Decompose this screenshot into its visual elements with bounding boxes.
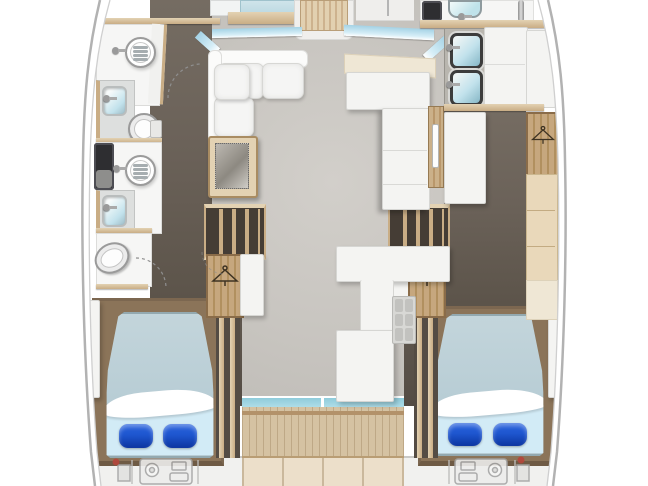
hanger-icon — [530, 125, 556, 147]
wood-step-strip — [230, 314, 235, 458]
pillow — [119, 424, 153, 447]
boat-floor-plan — [0, 0, 648, 486]
port-stairs — [204, 204, 266, 260]
faucet-icon — [446, 44, 453, 51]
cockpit-deck-sill — [242, 411, 404, 415]
galley-island-column-upper — [360, 280, 394, 333]
hanger-icon — [210, 265, 240, 289]
pillow — [493, 423, 527, 446]
port-berth — [102, 312, 218, 458]
settee-cushion — [214, 97, 254, 137]
head-appliance-dark — [422, 1, 442, 21]
settee-corner-cushion — [214, 64, 250, 100]
hull-cabinet — [526, 174, 558, 282]
counter-seam — [383, 184, 427, 185]
cabinet-seam — [527, 246, 555, 247]
counter-seam — [485, 64, 525, 65]
salon-table-top — [215, 143, 249, 189]
port-locker-side-panel — [240, 254, 264, 316]
shower-rail — [518, 0, 524, 22]
counter-seam — [383, 150, 427, 151]
wood-step-strip — [428, 314, 433, 458]
cabinet-seam — [527, 210, 555, 211]
shower-head-icon — [113, 165, 120, 172]
door-handle — [432, 124, 439, 168]
port-cabin-shelf — [88, 300, 100, 398]
starboard-hull-locker — [526, 112, 560, 178]
pillow — [163, 424, 197, 447]
appliance-grid — [392, 296, 416, 344]
galley-island-column-lower — [336, 330, 394, 402]
galley-counter-column — [382, 108, 430, 210]
shower-drain-icon — [125, 155, 156, 186]
helm-wheel-post — [387, 0, 389, 16]
transom-deck — [242, 456, 404, 486]
wood-step-strip — [219, 314, 224, 458]
forward-berth-foot-trim — [228, 12, 294, 24]
faucet-icon — [103, 204, 110, 211]
port-bulkhead — [96, 284, 148, 289]
starboard-berth-steps — [414, 314, 438, 458]
galley-worktop — [484, 27, 528, 109]
hull-cabinet-cream — [526, 280, 558, 320]
aft-window-mullion — [321, 396, 324, 407]
shower-drain-icon — [125, 37, 156, 68]
wood-step-strip — [417, 314, 422, 458]
sink-icon — [102, 195, 127, 227]
stair-treads — [210, 209, 260, 255]
sink-icon — [450, 70, 483, 106]
helm-area — [356, 0, 414, 21]
pillow — [448, 423, 482, 446]
galley-counter-top — [346, 72, 430, 110]
starboard-bulkhead — [444, 104, 544, 111]
shower-head-icon — [112, 47, 119, 54]
faucet-icon — [446, 81, 453, 88]
port-berth-steps — [216, 314, 240, 458]
fridge-cabinet — [526, 30, 556, 108]
faucet-icon — [458, 13, 465, 20]
sink-icon — [450, 33, 483, 69]
galley-island-bar — [336, 246, 450, 282]
toilet-tank — [150, 120, 162, 138]
settee-cushion — [262, 63, 304, 99]
vanity-sink — [96, 170, 112, 188]
starboard-berth — [430, 314, 548, 456]
companionway-steps — [300, 0, 348, 31]
fridge-box — [444, 112, 486, 204]
port-hanging-locker — [206, 254, 244, 318]
faucet-icon — [103, 95, 110, 102]
